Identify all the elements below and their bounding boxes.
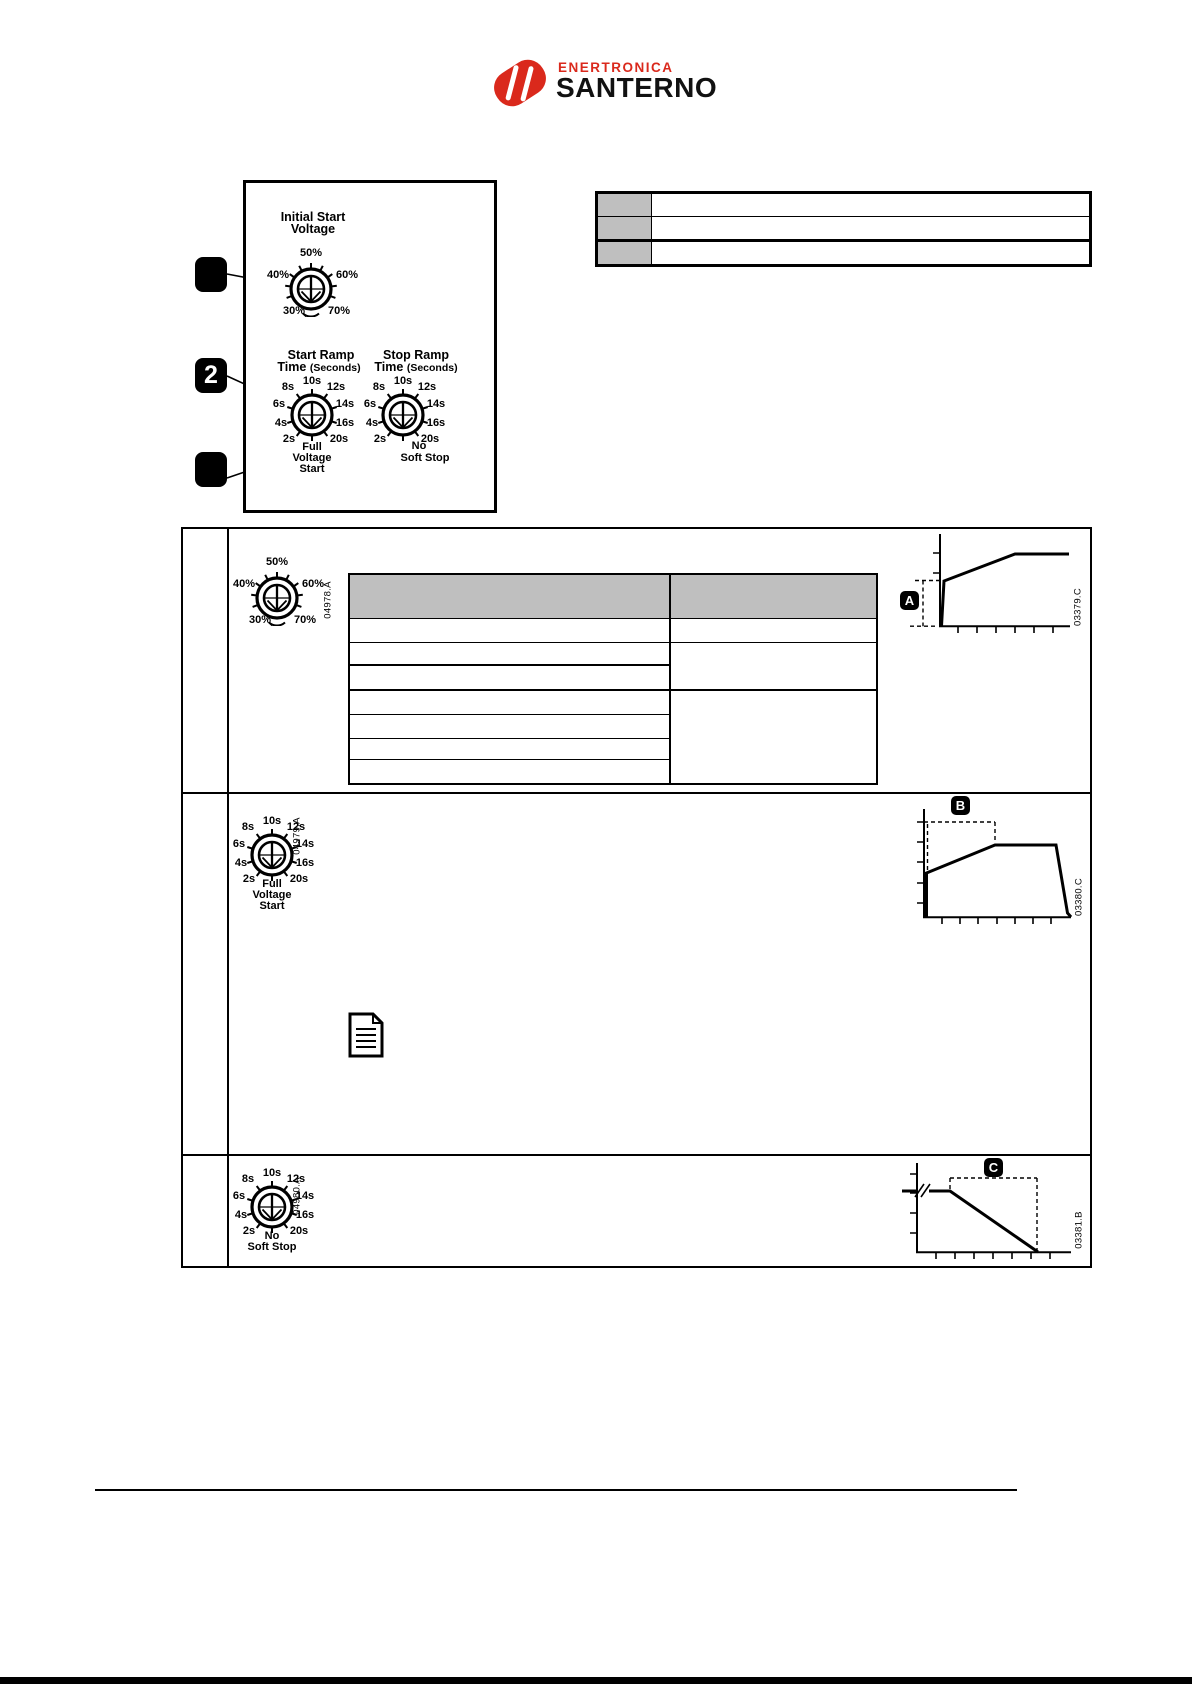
dial-tick-20s: 20s [290, 1225, 308, 1237]
manual-page: ENERTRONICA SANTERNO 2 Initial Start Vol… [0, 0, 1192, 1684]
dial-tick-50: 50% [300, 247, 322, 259]
graph-a-voltage-ramp [890, 528, 1095, 634]
logo: ENERTRONICA SANTERNO [492, 58, 762, 108]
dial-tick-6s: 6s [233, 838, 245, 850]
row2-dial-start-ramp: 10s 8s 12s 6s 14s 4s 16s 2s 20s Full Vol… [202, 785, 342, 925]
value-cell [652, 241, 1091, 266]
cell [349, 618, 670, 642]
footer-rule [95, 1489, 1017, 1491]
dial-tick-16s: 16s [296, 857, 314, 869]
table-row [349, 574, 877, 618]
row3-image-id: 04980.A [292, 1177, 303, 1215]
graph-b-figure-id: 03380.C [1074, 878, 1085, 916]
dial-tick-2s: 2s [243, 1225, 255, 1237]
cell [349, 642, 670, 665]
value-cell [652, 217, 1091, 241]
dial-tick-10s: 10s [263, 1167, 281, 1179]
table-row [349, 690, 877, 714]
dial-tick-4s: 4s [235, 857, 247, 869]
dial-tick-20s: 20s [290, 873, 308, 885]
dial-tick-6s: 6s [233, 1190, 245, 1202]
dial-tick-50: 50% [266, 556, 288, 568]
dial-tick-4s: 4s [235, 1209, 247, 1221]
cell [670, 642, 877, 690]
row1-inner-table [348, 573, 878, 785]
note-document-icon [347, 1012, 385, 1058]
row2-image-id: 04979.A [292, 817, 303, 855]
value-cell [652, 193, 1091, 217]
header-cell [597, 241, 652, 266]
dial-tick-16s: 16s [427, 417, 445, 429]
cell [349, 665, 670, 690]
row3-dial-stop-ramp: 10s 8s 12s 6s 14s 4s 16s 2s 20s No Soft … [202, 1137, 342, 1277]
dial-tick-2s: 2s [243, 873, 255, 885]
dial-tick-4s: 4s [366, 417, 378, 429]
dial-tick-30: 30% [249, 614, 271, 626]
table-row [597, 241, 1091, 266]
dial-tick-10s: 10s [303, 375, 321, 387]
dial-caption-soft-stop: Soft Stop [401, 452, 450, 464]
dial-tick-60: 60% [302, 578, 324, 590]
dial-tick-8s: 8s [373, 381, 385, 393]
dial-tick-40: 40% [233, 578, 255, 590]
graph-c-figure-id: 03381.B [1074, 1211, 1085, 1249]
logo-santerno: SANTERNO [556, 72, 717, 104]
cell [349, 738, 670, 759]
panel-dial-stop-ramp: 10s 8s 12s 6s 14s 4s 16s 2s 20s No Soft … [333, 345, 473, 485]
cell [670, 690, 877, 784]
dial-tick-2s: 2s [283, 433, 295, 445]
dial-caption-start: Start [299, 463, 324, 475]
row1-image-id: 04978.A [323, 581, 334, 619]
table-row [597, 193, 1091, 217]
graph-b-start-ramp [893, 792, 1095, 924]
cell [349, 759, 670, 784]
dial-tick-2s: 2s [374, 433, 386, 445]
dial-tick-8s: 8s [282, 381, 294, 393]
cell [349, 714, 670, 738]
table-row [349, 618, 877, 642]
table-row [597, 217, 1091, 241]
dial-tick-70: 70% [294, 614, 316, 626]
dial-tick-40: 40% [267, 269, 289, 281]
dial-tick-60: 60% [336, 269, 358, 281]
graph-a-figure-id: 03379.C [1073, 588, 1084, 626]
dial-tick-4s: 4s [275, 417, 287, 429]
dial-caption-no: No [412, 440, 427, 452]
dial-tick-6s: 6s [364, 398, 376, 410]
dial-tick-8s: 8s [242, 1173, 254, 1185]
cell [349, 690, 670, 714]
header-cell [349, 574, 670, 618]
graph-c-stop-ramp [888, 1156, 1095, 1260]
top-right-table [595, 191, 1092, 267]
dial-caption-start: Start [259, 900, 284, 912]
page-bottom-bar [0, 1677, 1192, 1684]
header-cell [670, 574, 877, 618]
dial-tick-6s: 6s [273, 398, 285, 410]
dial-tick-8s: 8s [242, 821, 254, 833]
dial-tick-70: 70% [328, 305, 350, 317]
dial-tick-14s: 14s [427, 398, 445, 410]
header-cell [597, 217, 652, 241]
dial-tick-10s: 10s [263, 815, 281, 827]
santerno-logo-icon [492, 58, 548, 108]
table-row [349, 642, 877, 665]
dial-caption-soft-stop: Soft Stop [248, 1241, 297, 1253]
header-cell [597, 193, 652, 217]
dial-tick-10s: 10s [394, 375, 412, 387]
cell [670, 618, 877, 642]
dial-tick-30: 30% [283, 305, 305, 317]
dial-tick-12s: 12s [418, 381, 436, 393]
panel-dial-initial-start-voltage: 50% 40% 60% 30% 70% [241, 219, 381, 359]
